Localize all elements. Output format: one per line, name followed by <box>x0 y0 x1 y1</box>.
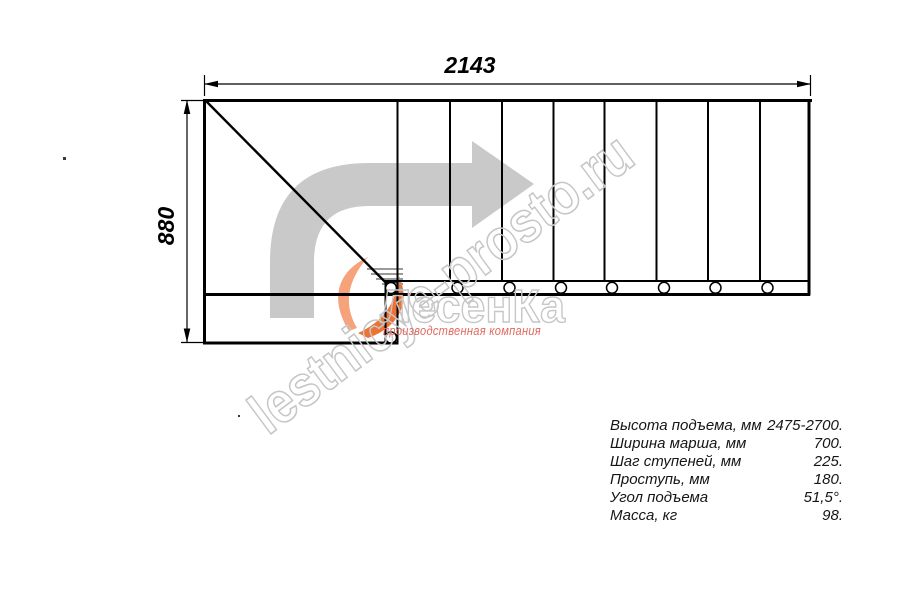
spec-label: Высота подъема, мм <box>610 417 762 435</box>
staircase-drawing-page: lestnicye-prosto.ru ЛесенКа производстве… <box>0 0 900 600</box>
watermark-logo-subtitle: производственная компания <box>383 324 541 338</box>
spec-row-tread: Проступь, мм 180. <box>610 471 843 489</box>
dim-arrow-up-icon <box>184 100 191 114</box>
spec-value: 98. <box>822 507 843 525</box>
spec-row-step-pitch: Шаг ступеней, мм 225. <box>610 453 843 471</box>
speck-dot <box>63 157 66 160</box>
spec-label: Масса, кг <box>610 507 677 525</box>
spec-label: Ширина марша, мм <box>610 435 746 453</box>
dimension-width-label: 2143 <box>410 53 530 77</box>
spec-row-angle: Угол подъема 51,5°. <box>610 489 843 507</box>
spec-label: Угол подъема <box>610 489 708 507</box>
dim-arrow-left-icon <box>204 81 218 88</box>
spec-value: 2475-2700. <box>767 417 843 435</box>
spec-row-march-width: Ширина марша, мм 700. <box>610 435 843 453</box>
spec-value: 225. <box>814 453 843 471</box>
dim-arrow-down-icon <box>184 329 191 343</box>
spec-row-mass: Масса, кг 98. <box>610 507 843 525</box>
speck-dot <box>238 415 240 417</box>
spec-value: 51,5°. <box>804 489 843 507</box>
spec-label: Шаг ступеней, мм <box>610 453 741 471</box>
spec-value: 700. <box>814 435 843 453</box>
spec-row-height: Высота подъема, мм 2475-2700. <box>610 417 843 435</box>
dimension-height-label: 880 <box>154 204 178 248</box>
dim-arrow-right-icon <box>797 81 811 88</box>
spec-value: 180. <box>814 471 843 489</box>
spec-label: Проступь, мм <box>610 471 710 489</box>
spec-table: Высота подъема, мм 2475-2700. Ширина мар… <box>610 417 843 526</box>
